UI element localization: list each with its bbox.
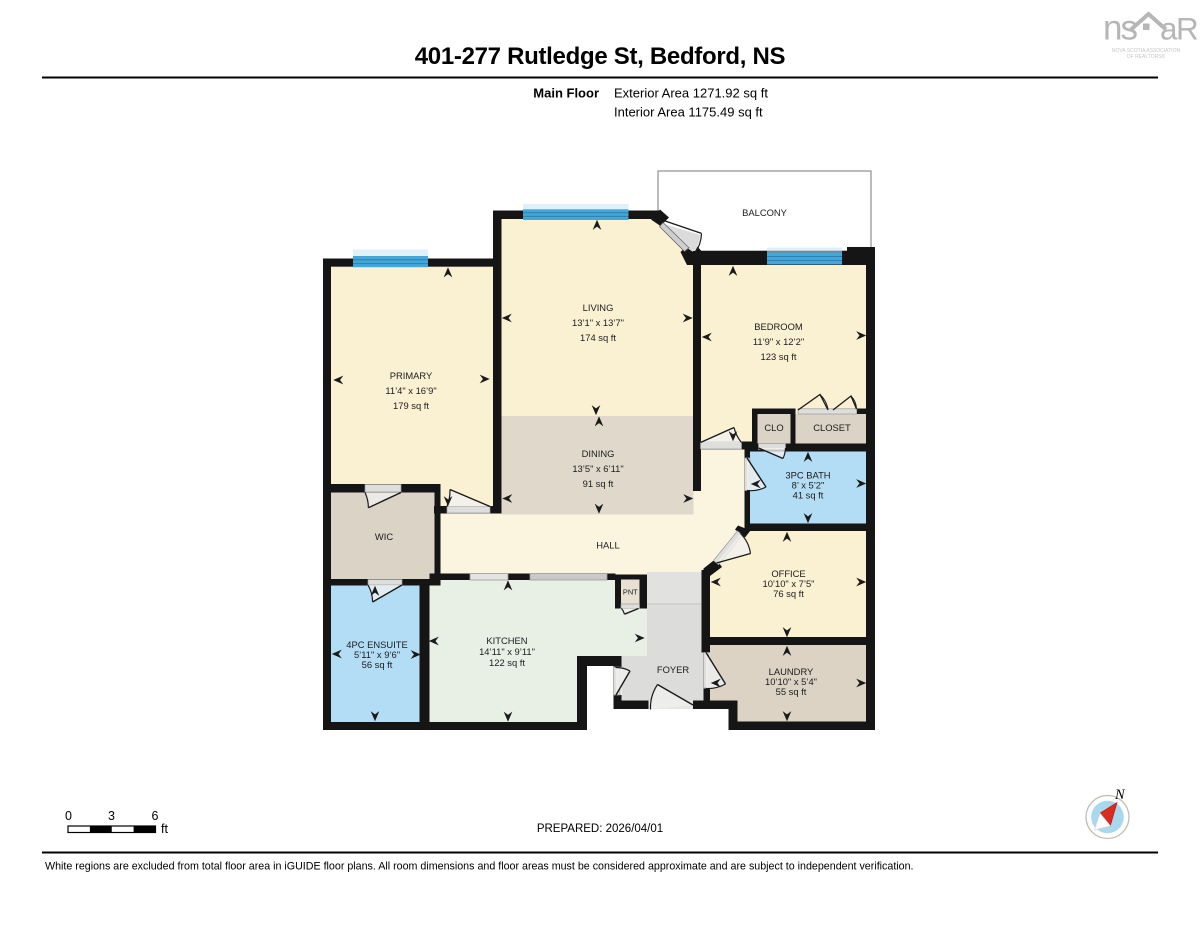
svg-text:6: 6 <box>152 809 159 823</box>
svg-text:PREPARED: 2026/04/01: PREPARED: 2026/04/01 <box>537 823 663 835</box>
svg-text:White regions are excluded fro: White regions are excluded from total fl… <box>45 861 914 873</box>
svg-text:BEDROOM: BEDROOM <box>754 321 803 332</box>
svg-text:ft: ft <box>161 822 168 836</box>
svg-text:3: 3 <box>108 809 115 823</box>
svg-text:Main Floor: Main Floor <box>533 86 599 101</box>
svg-text:LIVING: LIVING <box>583 302 614 313</box>
svg-text:13’5" x 6’11": 13’5" x 6’11" <box>572 463 623 474</box>
svg-text:HALL: HALL <box>596 540 619 551</box>
svg-text:91 sq ft: 91 sq ft <box>583 478 614 489</box>
svg-text:11’9" x 12’2": 11’9" x 12’2" <box>753 336 804 347</box>
svg-text:DINING: DINING <box>582 448 615 459</box>
svg-text:11’4" x 16’9": 11’4" x 16’9" <box>385 385 436 396</box>
svg-text:179 sq ft: 179 sq ft <box>393 400 429 411</box>
svg-text:BALCONY: BALCONY <box>742 207 788 218</box>
svg-text:123 sq ft: 123 sq ft <box>761 351 797 362</box>
svg-text:56 sq ft: 56 sq ft <box>362 659 393 670</box>
svg-text:13’1" x 13’7": 13’1" x 13’7" <box>572 317 624 328</box>
svg-text:OF REALTORS®: OF REALTORS® <box>1127 53 1166 60</box>
svg-text:FOYER: FOYER <box>657 664 690 675</box>
svg-text:N: N <box>1114 787 1126 803</box>
svg-text:Interior Area 1175.49 sq ft: Interior Area 1175.49 sq ft <box>614 105 763 120</box>
svg-text:0: 0 <box>65 809 72 823</box>
svg-text:KITCHEN: KITCHEN <box>486 635 527 646</box>
svg-text:PRIMARY: PRIMARY <box>390 370 433 381</box>
svg-text:55 sq ft: 55 sq ft <box>776 686 807 697</box>
svg-text:WIC: WIC <box>375 531 393 542</box>
svg-text:122 sq ft: 122 sq ft <box>489 657 525 668</box>
svg-text:CLO: CLO <box>764 422 783 433</box>
svg-text:174 sq ft: 174 sq ft <box>580 332 616 343</box>
svg-text:PNT: PNT <box>623 588 638 597</box>
svg-text:41 sq ft: 41 sq ft <box>793 490 824 501</box>
svg-text:14’11" x 9’11": 14’11" x 9’11" <box>479 646 535 657</box>
svg-text:401-277 Rutledge St, Bedford,: 401-277 Rutledge St, Bedford, NS <box>415 43 786 70</box>
svg-text:CLOSET: CLOSET <box>813 422 851 433</box>
svg-text:76 sq ft: 76 sq ft <box>773 588 804 599</box>
svg-text:Exterior Area 1271.92 sq ft: Exterior Area 1271.92 sq ft <box>614 86 768 101</box>
